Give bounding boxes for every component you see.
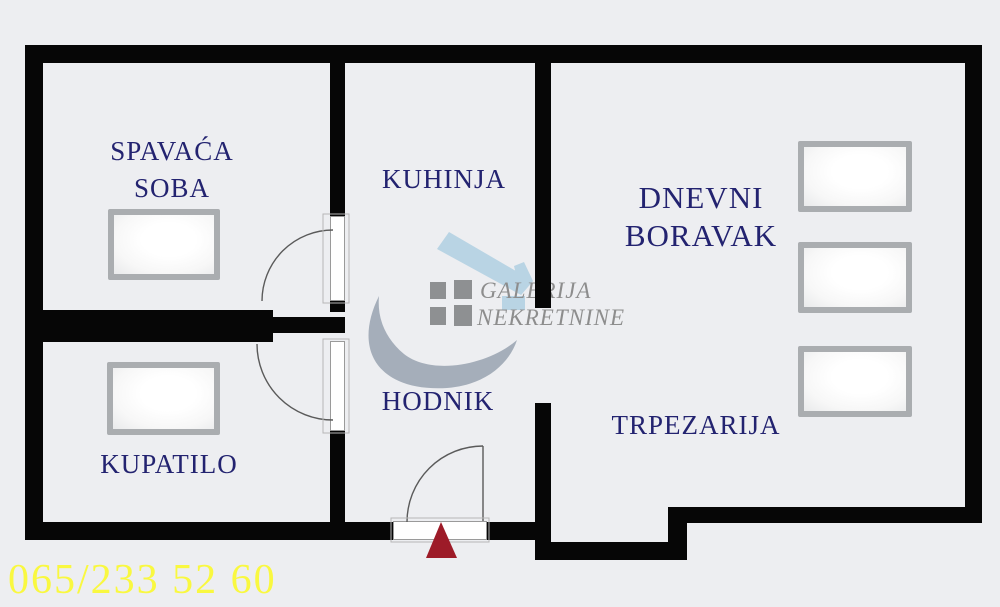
bedroom-door [330,216,345,301]
room-label-living-line2: BORAVAK [590,217,812,255]
room-label-bedroom-line2: SOBA [62,170,282,207]
room-label-living-line1: DNEVNI [590,179,812,217]
entrance-door [393,521,487,540]
wall-right [965,45,982,523]
wall-bottom-mid [487,522,535,540]
living-window-marker-1 [798,141,912,212]
wall-dining-bottom [535,542,687,560]
watermark-line2: NEKRETNINE [477,305,625,331]
wall-bedroom-stub [330,300,345,312]
bedroom-window-marker [108,209,220,280]
living-window-marker-3 [798,346,912,417]
entrance-door-swing-arc [407,446,483,522]
bathroom-door-swing-arc [257,344,333,420]
room-label-living: DNEVNI BORAVAK [590,179,812,255]
wall-divider-bottom [535,403,551,560]
room-label-bedroom-line1: SPAVAĆA [62,133,282,170]
window-squares-icon [430,280,472,326]
bathroom-window-marker [107,362,220,435]
wall-bath-hall [330,430,345,522]
wall-bottom-right [687,507,982,523]
wall-left [25,45,43,540]
living-window-marker-2 [798,242,912,313]
room-label-hallway: HODNIK [328,386,548,417]
wall-bedroom-bath-thick [25,310,273,342]
wall-bottom-left [25,522,393,540]
phone-number: 065/233 52 60 [8,556,277,604]
floor-plan: GALERIJA NEKRETNINE [0,0,1000,607]
wall-top [25,45,982,63]
room-label-dining: TRPEZARIJA [585,410,807,441]
room-label-bathroom: KUPATILO [59,449,279,480]
room-label-kitchen: KUHINJA [334,164,554,195]
bedroom-door-swing-arc [262,230,333,301]
room-label-bedroom: SPAVAĆA SOBA [62,133,282,207]
wall-bedroom-bath-thin [273,317,345,333]
